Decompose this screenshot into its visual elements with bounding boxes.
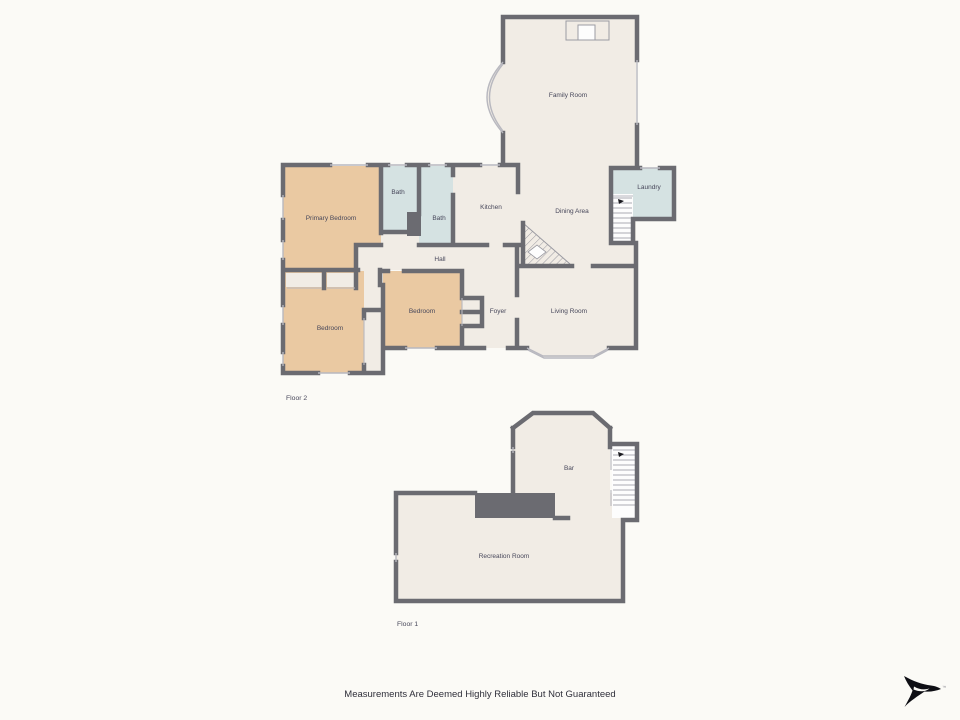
bedroom-middle-label: Bedroom [409, 308, 435, 315]
trademark-symbol: ™ [942, 685, 947, 690]
floor-2-caption: Floor 2 [286, 395, 307, 402]
bath-2-label: Bath [432, 215, 446, 222]
bird-logo-icon [904, 676, 941, 707]
floor-1-wall-mass [475, 493, 555, 518]
floor-1-room-fills [396, 413, 637, 601]
recreation-room-label: Recreation Room [479, 553, 530, 560]
bedroom-left-label: Bedroom [317, 325, 343, 332]
bar-label: Bar [564, 465, 575, 472]
disclaimer-text: Measurements Are Deemed Highly Reliable … [344, 689, 615, 700]
bath-2-fill [419, 166, 453, 245]
primary-bedroom-label: Primary Bedroom [306, 215, 357, 222]
floor-1-caption: Floor 1 [397, 621, 418, 628]
bedroom-left-closet-column-fill [364, 310, 381, 373]
floor-1-plan: Bar Recreation Room Floor 1 [396, 413, 637, 628]
floorplan-drawing: Family Room Laundry Kitchen Dining Area … [0, 0, 960, 720]
living-room-label: Living Room [551, 308, 587, 315]
kitchen-label: Kitchen [480, 204, 502, 211]
foyer-label: Foyer [490, 308, 507, 315]
bedroom-left-closet-b-fill [327, 273, 355, 287]
bath-wall-mass [407, 212, 421, 236]
floor-2-room-fills [283, 17, 674, 373]
living-room-fill [517, 266, 636, 348]
floor-2-plan: Family Room Laundry Kitchen Dining Area … [283, 17, 674, 402]
floorplan-page: Family Room Laundry Kitchen Dining Area … [0, 0, 960, 720]
stairs-f1-fill [612, 446, 637, 518]
hall-label: Hall [434, 256, 446, 263]
laundry-label: Laundry [637, 184, 661, 191]
family-room-label: Family Room [549, 92, 587, 99]
brand-bird-logo: ™ [904, 676, 947, 707]
bath-1-label: Bath [391, 189, 405, 196]
dining-area-label: Dining Area [555, 208, 589, 215]
bedroom-left-closet-a-fill [286, 273, 322, 287]
